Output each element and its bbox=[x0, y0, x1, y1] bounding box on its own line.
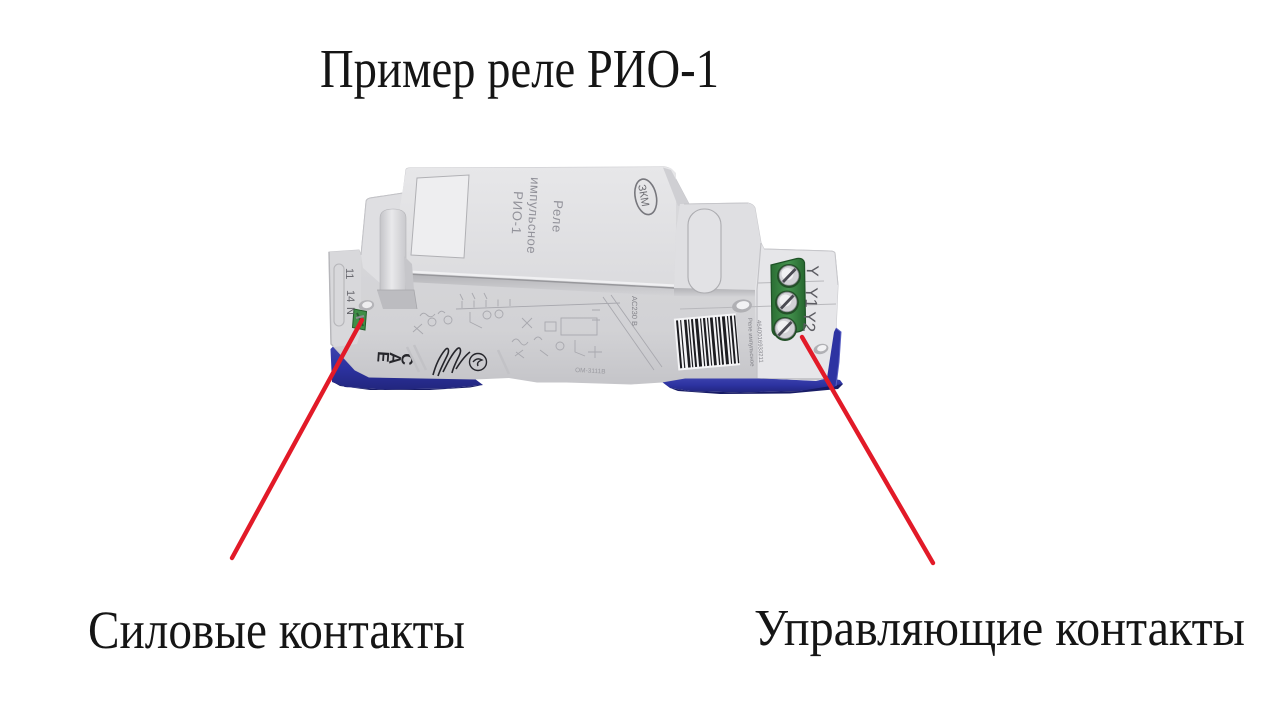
svg-text:AC230 В: AC230 В bbox=[630, 296, 639, 326]
svg-text:РИО-1: РИО-1 bbox=[509, 191, 526, 235]
svg-text:Y1: Y1 bbox=[801, 287, 821, 308]
svg-text:Управляющие контакты: Управляющие контакты bbox=[754, 600, 1245, 657]
svg-text:Силовые контакты: Силовые контакты bbox=[88, 600, 465, 660]
svg-text:Y2: Y2 bbox=[799, 311, 819, 332]
svg-text:11: 11 bbox=[343, 268, 355, 279]
svg-text:Y: Y bbox=[803, 265, 822, 277]
svg-text:Реле: Реле bbox=[549, 200, 566, 234]
svg-text:14: 14 bbox=[344, 290, 356, 302]
svg-text:Пример реле РИО-1: Пример реле РИО-1 bbox=[320, 38, 719, 99]
svg-text:N: N bbox=[344, 307, 356, 315]
